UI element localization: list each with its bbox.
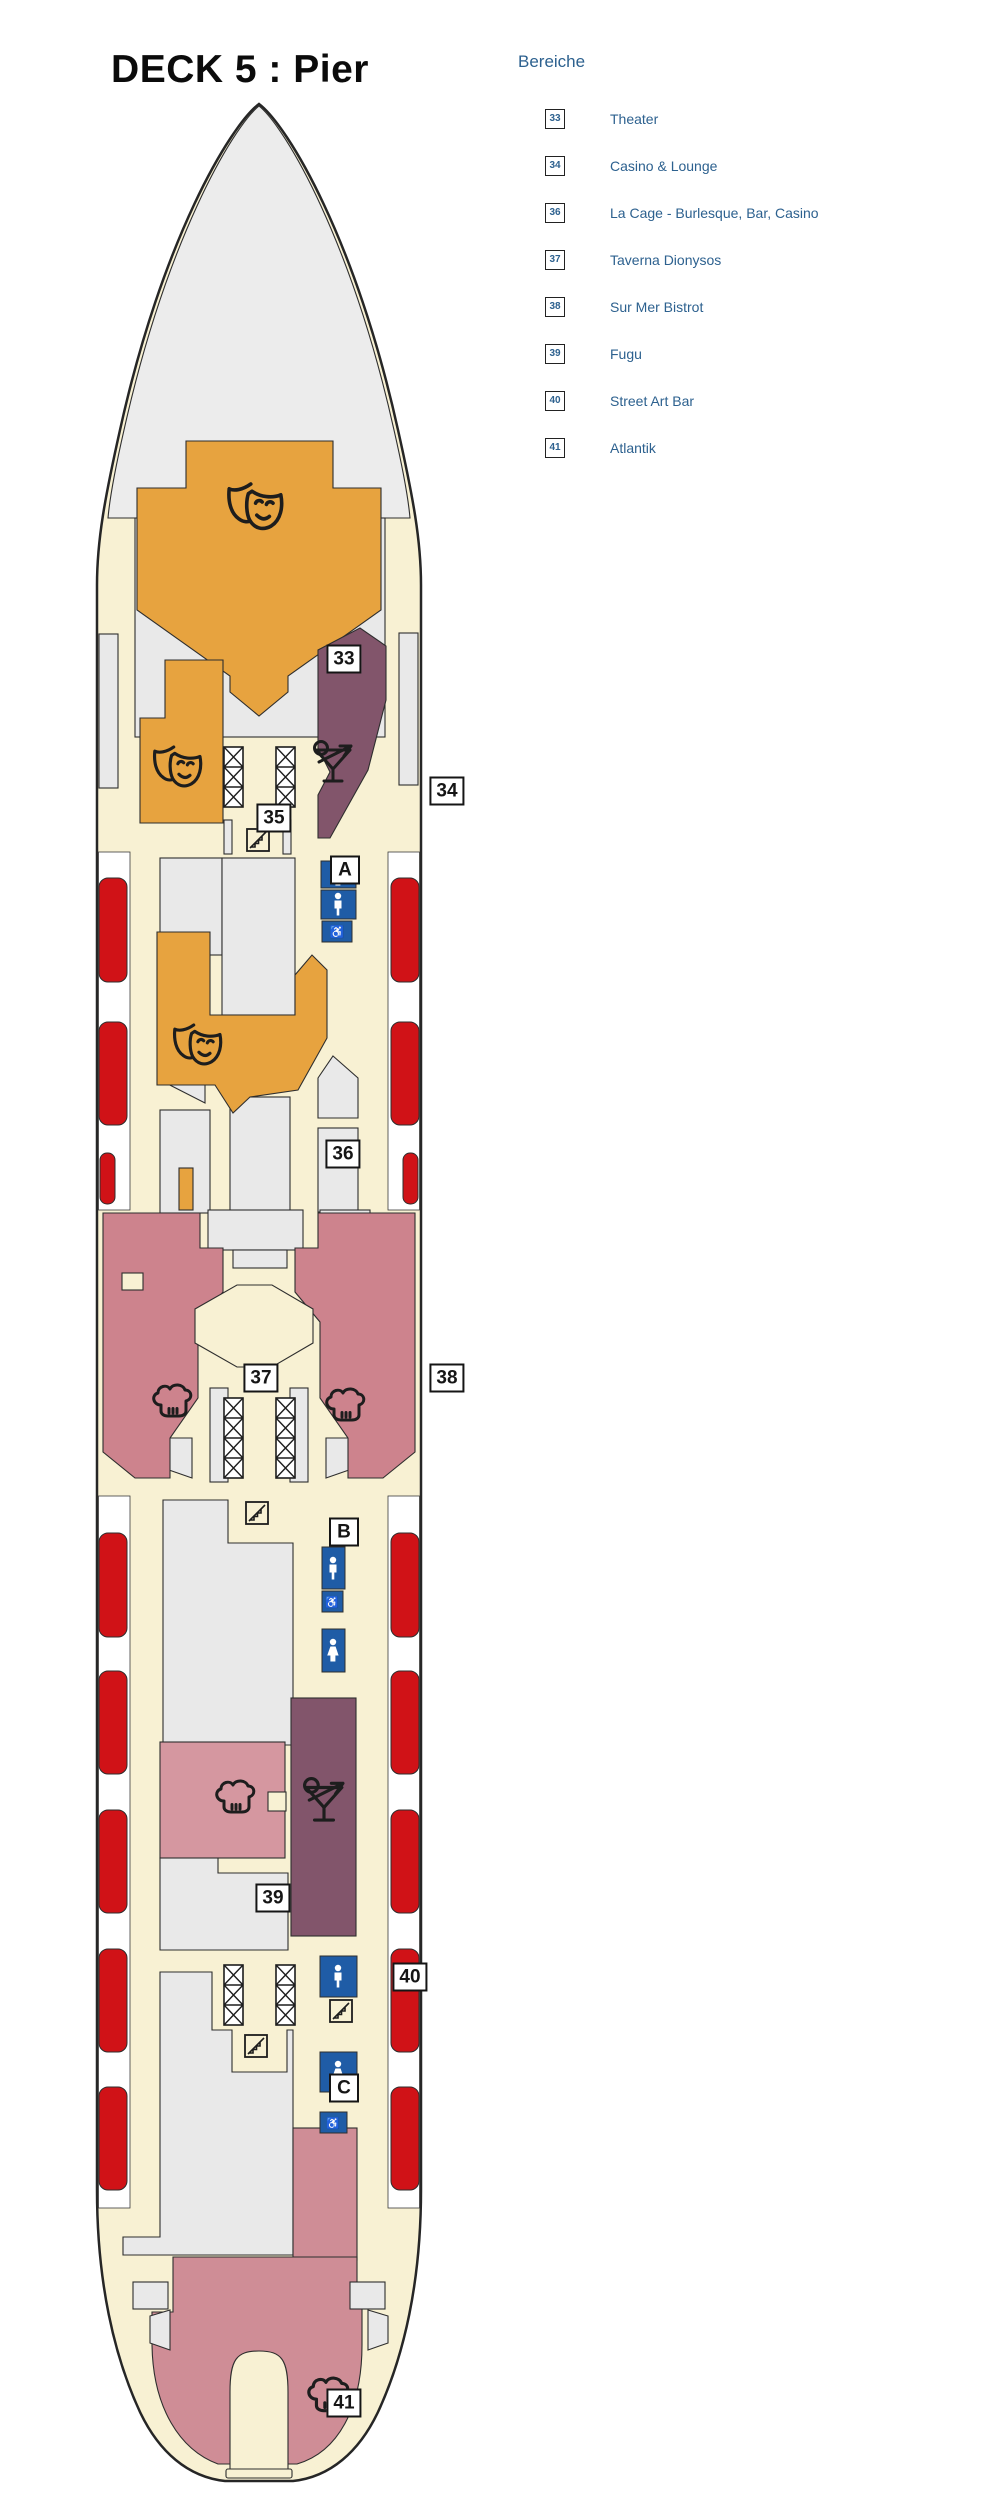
map-label-35: 35 xyxy=(256,804,291,833)
legend-item-label: Fugu xyxy=(610,346,642,362)
crosshatch-stairs-icon xyxy=(276,1398,295,1478)
legend-item-label: Sur Mer Bistrot xyxy=(610,299,703,315)
legend-number-badge: 37 xyxy=(545,250,565,270)
deck-plan-page: DECK 5 : Pier Bereiche 33 Theater 34 Cas… xyxy=(0,0,1000,2500)
map-label-stairs-c: C xyxy=(329,2074,359,2103)
legend-item-label: Taverna Dionysos xyxy=(610,252,721,268)
legend-item-sur-mer-bistrot[interactable]: 38 Sur Mer Bistrot xyxy=(518,283,988,330)
page-title: DECK 5 : Pier xyxy=(55,48,425,92)
legend-item-casino-lounge[interactable]: 34 Casino & Lounge xyxy=(518,142,988,189)
legend-item-street-art-bar[interactable]: 40 Street Art Bar xyxy=(518,377,988,424)
crosshatch-stairs-icon xyxy=(276,747,295,807)
map-label-38: 38 xyxy=(429,1364,464,1393)
ship-deck-plan: ♿ ♿ ♿ xyxy=(85,95,435,2495)
crosshatch-stairs-icon xyxy=(276,1965,295,2025)
legend-item-label: Casino & Lounge xyxy=(610,158,717,174)
crosshatch-stairs-icon xyxy=(224,1965,243,2025)
legend-number-badge: 38 xyxy=(545,297,565,317)
map-label-33: 33 xyxy=(326,645,361,674)
legend-item-fugu[interactable]: 39 Fugu xyxy=(518,330,988,377)
legend-title: Bereiche xyxy=(518,52,988,72)
legend-item-label: Street Art Bar xyxy=(610,393,694,409)
crosshatch-stairs-icon xyxy=(224,747,243,807)
wheelchair-icon: ♿ xyxy=(326,2117,340,2130)
legend-item-taverna-dionysos[interactable]: 37 Taverna Dionysos xyxy=(518,236,988,283)
legend-item-theater[interactable]: 33 Theater xyxy=(518,95,988,142)
area-36-pillar xyxy=(179,1168,193,1210)
legend-number-badge: 33 xyxy=(545,109,565,129)
legend-number-badge: 40 xyxy=(545,391,565,411)
map-label-36: 36 xyxy=(325,1140,360,1169)
legend-item-atlantik[interactable]: 41 Atlantik xyxy=(518,424,988,471)
escalator-icon xyxy=(330,2000,352,2022)
area-41-atlantik-column xyxy=(293,2128,357,2260)
legend-item-label: Theater xyxy=(610,111,658,127)
map-label-stairs-a: A xyxy=(330,856,360,885)
map-label-41: 41 xyxy=(326,2389,361,2418)
legend-number-badge: 41 xyxy=(545,438,565,458)
legend-item-label: La Cage - Burlesque, Bar, Casino xyxy=(610,205,819,221)
escalator-icon xyxy=(245,2035,267,2057)
legend: Bereiche 33 Theater 34 Casino & Lounge 3… xyxy=(518,52,988,471)
map-label-40: 40 xyxy=(392,1963,427,1992)
map-label-stairs-b: B xyxy=(329,1518,359,1547)
legend-item-label: Atlantik xyxy=(610,440,656,456)
legend-number-badge: 34 xyxy=(545,156,565,176)
crosshatch-stairs-icon xyxy=(224,1398,243,1478)
map-label-39: 39 xyxy=(255,1884,290,1913)
legend-item-la-cage[interactable]: 36 La Cage - Burlesque, Bar, Casino xyxy=(518,189,988,236)
escalator-icon xyxy=(246,1502,268,1524)
map-label-37: 37 xyxy=(243,1364,278,1393)
legend-number-badge: 39 xyxy=(545,344,565,364)
wheelchair-icon: ♿ xyxy=(325,1596,339,1609)
legend-number-badge: 36 xyxy=(545,203,565,223)
map-label-34: 34 xyxy=(429,777,464,806)
wheelchair-icon: ♿ xyxy=(330,925,345,939)
